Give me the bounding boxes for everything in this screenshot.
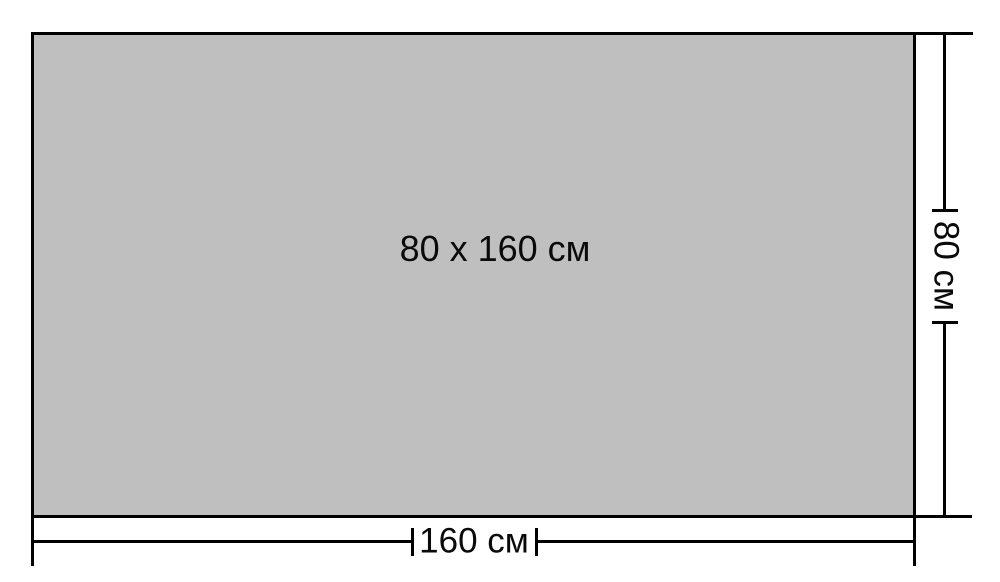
width-dimension-line-left-segment — [31, 540, 413, 543]
height-dimension-tick-top — [932, 209, 958, 212]
height-dimension-label: 80 см — [929, 221, 964, 311]
height-dimension-line-top-segment — [943, 32, 946, 211]
object-size-label: 80 x 160 см — [400, 231, 591, 267]
object-rectangle — [31, 32, 916, 518]
width-dimension-tick-right — [535, 528, 538, 556]
height-dimension-tick-bottom — [932, 321, 958, 324]
width-dimension-label: 160 см — [419, 524, 529, 559]
width-dimension-line-right-segment — [536, 540, 916, 543]
width-dimension-tick-left — [411, 528, 414, 556]
dimension-diagram: 80 x 160 см 160 см 80 см — [0, 0, 1000, 582]
height-dimension-line-bottom-segment — [943, 323, 946, 518]
